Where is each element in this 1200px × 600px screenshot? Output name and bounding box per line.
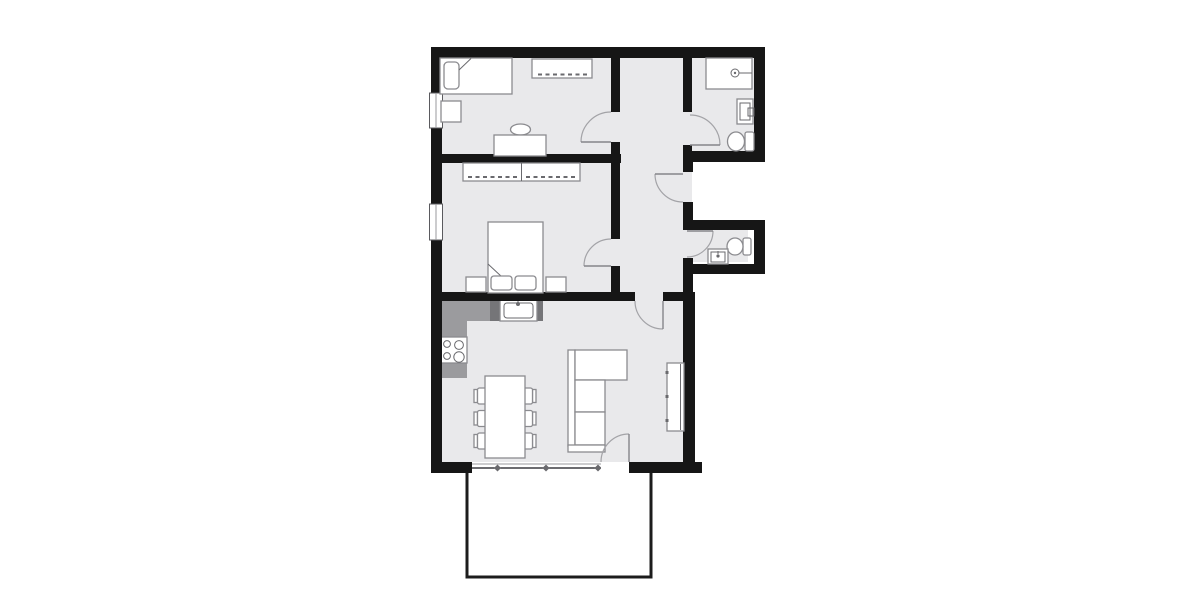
door-threshold [683,172,692,202]
toilet-cistern [743,238,751,255]
washbasin [737,99,754,124]
terrace [467,468,651,577]
toilet [727,238,751,255]
door-threshold [683,112,692,145]
living-room-window-band [472,462,602,473]
terrace-door-threshold [601,462,629,473]
washbasin [708,249,728,264]
bed-pillow [444,62,459,89]
shower [706,58,752,89]
hall-wall-segment [611,142,620,239]
nightstand [546,277,566,292]
sofa-seat [575,412,605,445]
sofa-armrest [568,445,605,452]
exterior-wall-bottom-segment [431,462,472,473]
bathroom-wall-segment [683,58,692,112]
hall-right-wall-segment [683,162,693,172]
door-threshold [635,292,663,301]
sofa-chaise [575,350,627,380]
toilet-cistern [745,132,754,151]
floor-plan-canvas [0,0,1200,600]
cooktop [441,337,467,363]
sideboard-knob [666,395,669,398]
terrace-deck [467,468,651,577]
counter-top-run [442,301,490,321]
dining-set [474,376,536,458]
door-threshold [611,112,620,142]
sink-faucet [516,302,520,306]
tv-sideboard [666,363,685,431]
bedroom-2-window [430,204,443,240]
sideboard-knob [666,371,669,374]
wc-wall-top [687,220,765,230]
bathroom-wall-bottom [683,151,765,162]
toilet-bowl [727,238,743,255]
bed-pillow [515,276,536,290]
hallway-floor [620,58,683,292]
living-wall-right [683,292,695,473]
nightstand [441,101,461,122]
desk [494,135,546,156]
bed-pillow [491,276,512,290]
dining-table [485,376,525,458]
exterior-wall-bottom-segment [629,462,702,473]
bathroom-wall-right [754,47,765,162]
floor-plan-page [0,0,1200,600]
sofa-backrest [568,350,575,446]
desk-chair [511,124,531,135]
door-threshold [683,230,691,258]
nightstand [466,277,486,292]
sideboard-knob [666,419,669,422]
hall-wall-segment [611,58,620,112]
toilet-bowl [728,132,745,151]
wc-wall-bottom [687,264,765,274]
toilet [728,132,755,151]
wardrobe [532,59,592,78]
door-threshold [611,239,620,266]
basin-faucet [716,254,719,257]
exterior-wall-top [431,47,765,58]
wardrobe [463,163,580,181]
sofa-seat [575,380,605,412]
